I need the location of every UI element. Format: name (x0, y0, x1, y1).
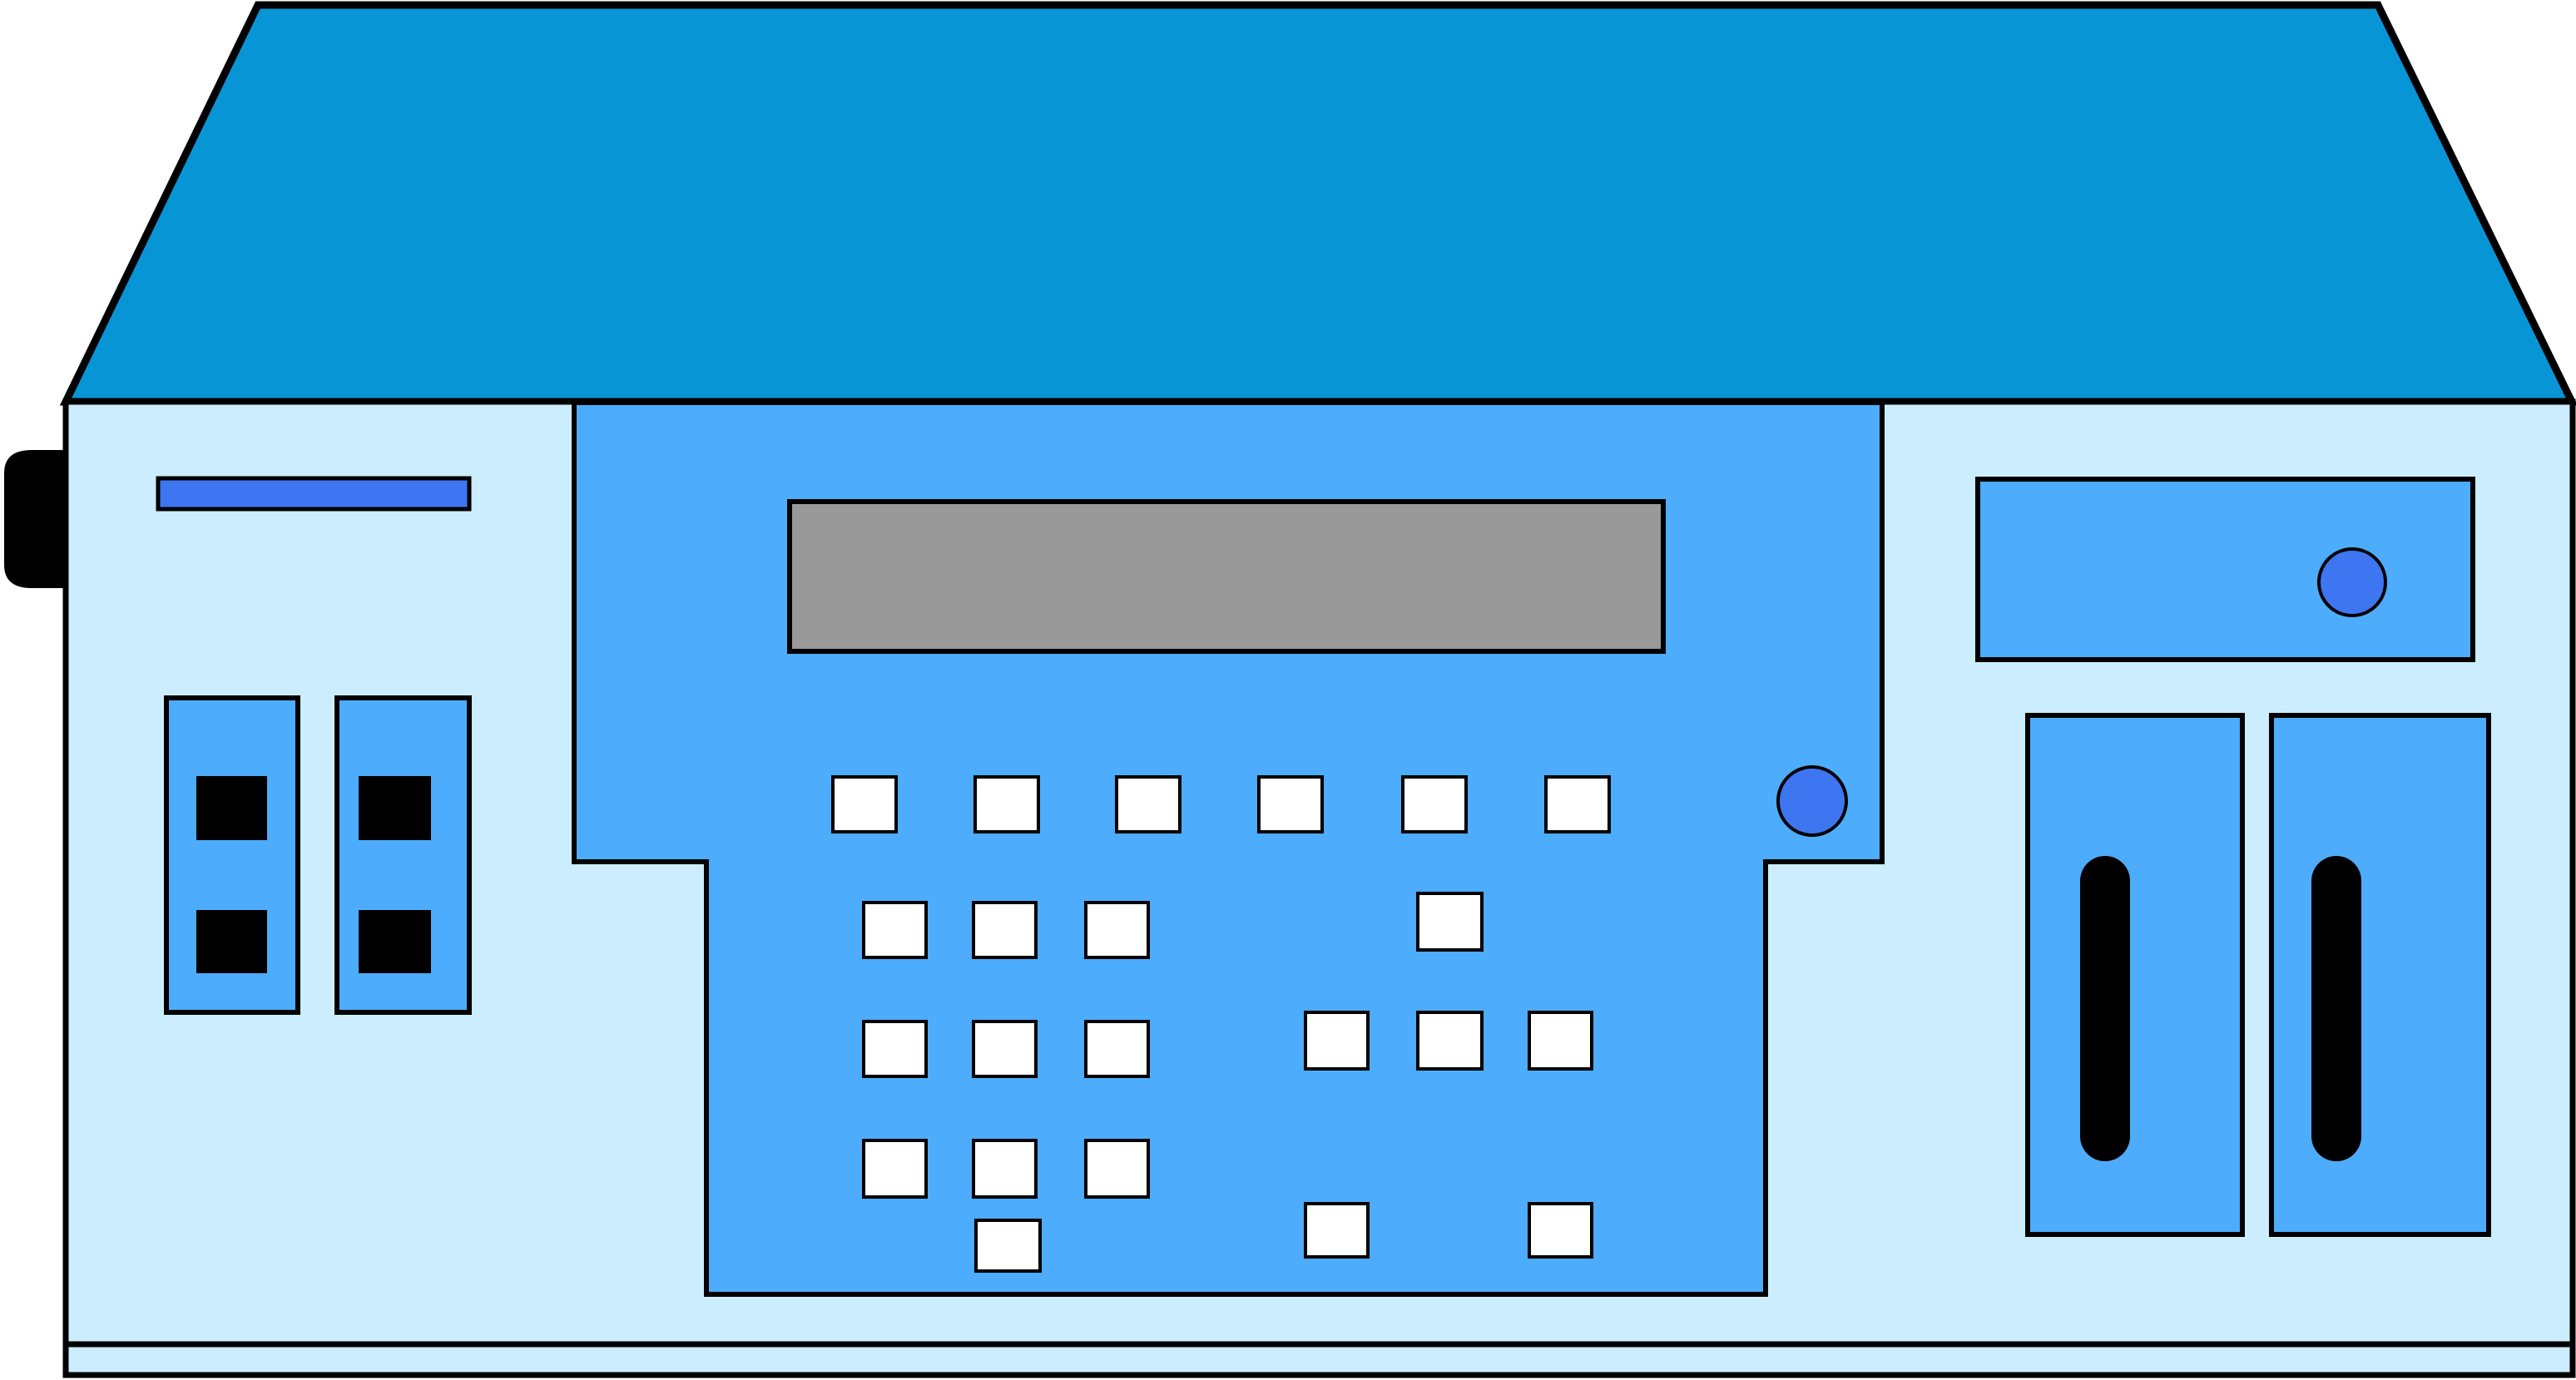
switch-square-2-bottom (359, 910, 431, 973)
keypad-button-r3c2 (973, 1140, 1036, 1197)
display-screen (790, 502, 1663, 651)
top-row-button-6 (1546, 777, 1609, 832)
switch-square-2-top (359, 776, 431, 840)
keypad-right-bottom-button-2 (1529, 1204, 1592, 1257)
top-row-button-2 (975, 777, 1038, 832)
right-panel-knob (2319, 549, 2385, 616)
disk-slot (158, 478, 469, 509)
keypad-button-r1c3 (1086, 903, 1148, 957)
top-row-button-5 (1403, 777, 1466, 832)
keypad-right-bottom-button-1 (1305, 1204, 1368, 1257)
side-connector (4, 450, 68, 588)
keypad-button-r3c3 (1086, 1140, 1148, 1197)
vent-slot-2 (2311, 856, 2361, 1161)
top-row-button-4 (1259, 777, 1322, 832)
keypad-right-top-button (1418, 893, 1482, 950)
right-upper-panel (1978, 479, 2473, 660)
keypad-right-mid-button-1 (1305, 1012, 1368, 1069)
keypad-button-r3c1 (864, 1140, 926, 1197)
device-drawing (0, 0, 2576, 1380)
keypad-right-mid-button-3 (1529, 1012, 1592, 1069)
keypad-button-r2c3 (1086, 1021, 1148, 1076)
keypad-right-mid-button-2 (1418, 1012, 1482, 1069)
top-row-button-1 (833, 777, 896, 832)
keypad-button-r1c2 (973, 903, 1036, 957)
panel-knob (1778, 767, 1846, 835)
vent-panel-2 (2271, 715, 2489, 1234)
top-row-button-3 (1117, 777, 1180, 832)
keypad-button-r2c2 (973, 1021, 1036, 1076)
switch-square-1-bottom (196, 910, 267, 973)
keypad-button-bottom-single (976, 1220, 1040, 1271)
keypad-button-r1c1 (864, 903, 926, 957)
vent-slot-1 (2080, 856, 2130, 1161)
keypad-button-r2c1 (864, 1021, 926, 1076)
device-illustration (0, 0, 2576, 1380)
vent-panel-1 (2028, 715, 2242, 1234)
device-lid (66, 5, 2572, 402)
switch-square-1-top (196, 776, 267, 840)
